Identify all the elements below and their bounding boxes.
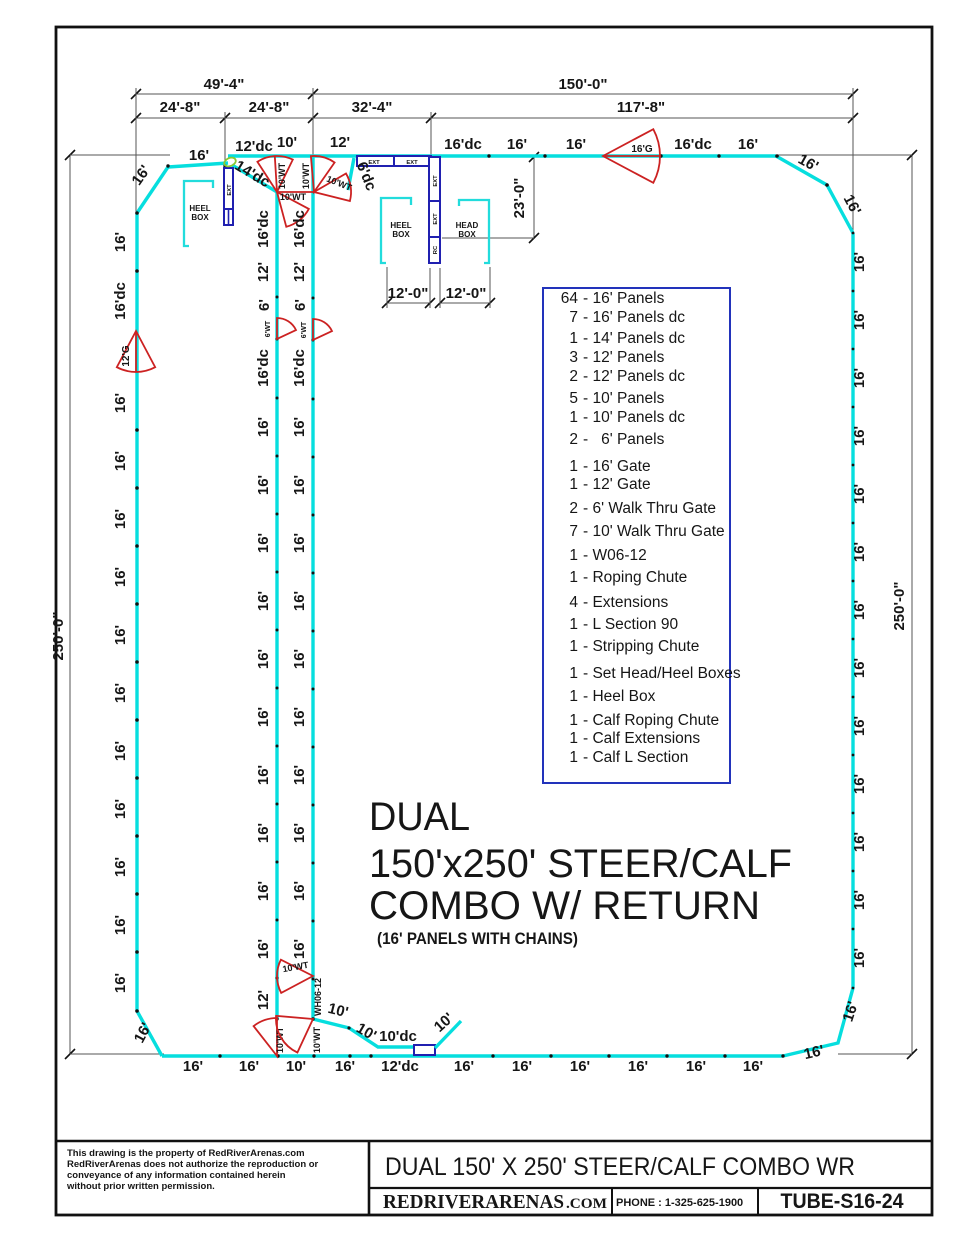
svg-text:10'WT: 10'WT	[277, 162, 287, 189]
svg-text:EXT: EXT	[433, 213, 439, 225]
svg-text:16'dc: 16'dc	[255, 349, 272, 387]
svg-text:16': 16'	[291, 591, 308, 611]
svg-text:- Roping Chute: - Roping Chute	[583, 569, 687, 586]
svg-text:- 10' Walk Thru Gate: - 10' Walk Thru Gate	[583, 523, 725, 540]
svg-text:16': 16'	[239, 1058, 259, 1075]
svg-text:250'-0": 250'-0"	[50, 611, 67, 660]
svg-text:250'-0": 250'-0"	[891, 581, 908, 630]
svg-text:16': 16'	[454, 1058, 474, 1075]
svg-text:1: 1	[569, 712, 578, 729]
svg-text:2: 2	[569, 368, 578, 385]
svg-text:16': 16'	[743, 1058, 763, 1075]
svg-text:16'G: 16'G	[631, 144, 653, 155]
svg-text:16': 16'	[255, 417, 272, 437]
svg-text:16'dc: 16'dc	[674, 136, 712, 153]
svg-text:- 12' Panels dc: - 12' Panels dc	[583, 368, 685, 385]
svg-text:EXT: EXT	[406, 160, 418, 166]
svg-text:This drawing is the property o: This drawing is the property of RedRiver…	[67, 1148, 305, 1159]
svg-text:1: 1	[569, 476, 578, 493]
svg-text:16': 16'	[570, 1058, 590, 1075]
svg-text:12': 12'	[330, 134, 350, 151]
svg-text:16'dc: 16'dc	[291, 210, 308, 248]
svg-text:- Calf Extensions: - Calf Extensions	[583, 730, 700, 747]
svg-text:10'WT: 10'WT	[312, 1026, 322, 1053]
svg-text:16': 16'	[851, 716, 868, 736]
svg-text:BOX: BOX	[458, 230, 476, 239]
svg-text:4: 4	[569, 594, 578, 611]
svg-text:RedRiverArenas does not author: RedRiverArenas does not authorize the re…	[67, 1159, 319, 1170]
svg-text:7: 7	[569, 523, 578, 540]
svg-text:16': 16'	[255, 823, 272, 843]
svg-text:16': 16'	[851, 426, 868, 446]
svg-text:16': 16'	[738, 136, 758, 153]
svg-text:16': 16'	[112, 683, 129, 703]
svg-text:REDRIVERARENAS: REDRIVERARENAS	[383, 1191, 564, 1213]
svg-text:EXT: EXT	[227, 184, 233, 196]
svg-text:6'WT: 6'WT	[301, 321, 308, 338]
svg-text:150'-0": 150'-0"	[558, 76, 607, 93]
svg-text:1: 1	[569, 616, 578, 633]
svg-text:16'dc: 16'dc	[444, 136, 482, 153]
svg-text:TUBE-S16-24: TUBE-S16-24	[781, 1190, 904, 1213]
svg-text:- Stripping Chute: - Stripping Chute	[583, 638, 699, 655]
svg-text:16': 16'	[851, 368, 868, 388]
svg-text:- W06-12: - W06-12	[583, 547, 647, 564]
svg-text:16': 16'	[255, 475, 272, 495]
svg-text:.COM: .COM	[566, 1196, 607, 1212]
svg-text:7: 7	[569, 309, 578, 326]
svg-text:16': 16'	[291, 417, 308, 437]
svg-text:1: 1	[569, 409, 578, 426]
svg-text:HEAD: HEAD	[456, 221, 479, 230]
svg-text:12'-0": 12'-0"	[388, 285, 429, 302]
svg-text:12'dc: 12'dc	[235, 138, 273, 155]
svg-text:PHONE : 1-325-625-1900: PHONE : 1-325-625-1900	[616, 1197, 743, 1209]
svg-text:1: 1	[569, 458, 578, 475]
svg-text:16': 16'	[112, 799, 129, 819]
svg-text:16': 16'	[851, 484, 868, 504]
svg-text:16': 16'	[851, 310, 868, 330]
svg-text:10'WT: 10'WT	[301, 162, 311, 189]
svg-text:16': 16'	[255, 765, 272, 785]
svg-text:- Calf L Section: - Calf L Section	[583, 749, 688, 766]
svg-text:1: 1	[569, 688, 578, 705]
svg-text:16'dc: 16'dc	[291, 349, 308, 387]
svg-text:16': 16'	[686, 1058, 706, 1075]
svg-text:32'-4": 32'-4"	[352, 99, 393, 116]
svg-text:16': 16'	[291, 881, 308, 901]
svg-text:16': 16'	[851, 948, 868, 968]
svg-text:1: 1	[569, 749, 578, 766]
svg-text:10': 10'	[286, 1058, 306, 1075]
svg-text:HEEL: HEEL	[189, 204, 210, 213]
svg-text:16'dc: 16'dc	[255, 210, 272, 248]
svg-text:1: 1	[569, 665, 578, 682]
svg-text:16': 16'	[851, 774, 868, 794]
svg-text:16': 16'	[112, 741, 129, 761]
svg-text:6'WT: 6'WT	[265, 320, 272, 337]
svg-text:49'-4": 49'-4"	[204, 76, 245, 93]
svg-text:12': 12'	[255, 990, 272, 1010]
svg-text:- 12' Gate: - 12' Gate	[583, 476, 651, 493]
svg-text:16': 16'	[112, 973, 129, 993]
svg-text:16': 16'	[291, 939, 308, 959]
svg-text:6': 6'	[256, 299, 273, 311]
svg-text:- 16' Panels: - 16' Panels	[583, 290, 665, 307]
svg-text:16': 16'	[507, 136, 527, 153]
svg-text:10': 10'	[277, 134, 297, 151]
svg-text:10'WT: 10'WT	[280, 192, 307, 202]
svg-text:117'-8": 117'-8"	[617, 99, 665, 116]
svg-text:16': 16'	[255, 533, 272, 553]
svg-text:DUAL: DUAL	[369, 795, 470, 839]
svg-text:16': 16'	[851, 890, 868, 910]
svg-text:16': 16'	[183, 1058, 203, 1075]
svg-text:23'-0": 23'-0"	[511, 178, 528, 219]
svg-text:1: 1	[569, 569, 578, 586]
svg-text:- 6' Panels: - 6' Panels	[583, 431, 665, 448]
svg-text:10'WT: 10'WT	[275, 1026, 285, 1053]
svg-text:conveyance of any information: conveyance of any information contained …	[67, 1170, 286, 1181]
svg-text:16': 16'	[112, 451, 129, 471]
svg-text:12'G: 12'G	[121, 345, 132, 367]
svg-text:- L Section 90: - L Section 90	[583, 616, 678, 633]
svg-text:EXT: EXT	[433, 175, 439, 187]
svg-text:12': 12'	[255, 262, 272, 282]
svg-text:16': 16'	[566, 136, 586, 153]
svg-text:- 12' Panels: - 12' Panels	[583, 349, 665, 366]
svg-text:16': 16'	[291, 823, 308, 843]
svg-text:16'dc: 16'dc	[112, 282, 129, 320]
svg-text:1: 1	[569, 547, 578, 564]
svg-text:64: 64	[561, 290, 579, 307]
svg-text:1: 1	[569, 730, 578, 747]
svg-text:16': 16'	[291, 475, 308, 495]
svg-text:16': 16'	[112, 567, 129, 587]
svg-text:12': 12'	[291, 262, 308, 282]
svg-text:16': 16'	[112, 625, 129, 645]
svg-text:- 16' Gate: - 16' Gate	[583, 458, 651, 475]
svg-text:16': 16'	[112, 857, 129, 877]
svg-text:(16' PANELS WITH CHAINS): (16' PANELS WITH CHAINS)	[377, 929, 578, 948]
svg-text:16': 16'	[851, 832, 868, 852]
svg-text:COMBO W/ RETURN: COMBO W/ RETURN	[369, 884, 760, 928]
svg-text:6': 6'	[292, 299, 309, 311]
svg-text:16': 16'	[112, 393, 129, 413]
svg-text:3: 3	[569, 349, 578, 366]
svg-text:16': 16'	[255, 939, 272, 959]
svg-text:without prior written permissi: without prior written permission.	[66, 1181, 215, 1192]
svg-text:WH06-12: WH06-12	[313, 978, 323, 1016]
svg-text:- 16' Panels dc: - 16' Panels dc	[583, 309, 685, 326]
svg-text:5: 5	[569, 390, 578, 407]
svg-text:16': 16'	[291, 649, 308, 669]
svg-text:16': 16'	[512, 1058, 532, 1075]
svg-text:- 14' Panels dc: - 14' Panels dc	[583, 330, 685, 347]
svg-text:BOX: BOX	[392, 230, 410, 239]
svg-text:- 6' Walk Thru Gate: - 6' Walk Thru Gate	[583, 500, 716, 517]
svg-text:RC: RC	[433, 245, 439, 254]
svg-text:- Heel Box: - Heel Box	[583, 688, 656, 705]
svg-text:- 10' Panels: - 10' Panels	[583, 390, 665, 407]
svg-text:- Calf Roping Chute: - Calf Roping Chute	[583, 712, 719, 729]
svg-text:16': 16'	[255, 707, 272, 727]
svg-text:16': 16'	[628, 1058, 648, 1075]
svg-text:- Set Head/Heel Boxes: - Set Head/Heel Boxes	[583, 665, 741, 682]
svg-text:16': 16'	[851, 658, 868, 678]
svg-text:16': 16'	[255, 881, 272, 901]
svg-text:12'dc: 12'dc	[381, 1058, 419, 1075]
svg-text:16': 16'	[112, 232, 129, 252]
svg-text:16': 16'	[255, 591, 272, 611]
svg-text:16': 16'	[851, 542, 868, 562]
svg-text:10'dc: 10'dc	[379, 1028, 417, 1045]
svg-text:1: 1	[569, 330, 578, 347]
svg-text:24'-8": 24'-8"	[160, 99, 201, 116]
svg-text:16': 16'	[291, 533, 308, 553]
svg-text:16': 16'	[189, 147, 209, 164]
svg-text:1: 1	[569, 638, 578, 655]
svg-text:2: 2	[569, 431, 578, 448]
svg-text:16': 16'	[291, 765, 308, 785]
svg-text:150'x250' STEER/CALF: 150'x250' STEER/CALF	[369, 842, 792, 886]
svg-text:BOX: BOX	[191, 213, 209, 222]
svg-text:16': 16'	[335, 1058, 355, 1075]
svg-text:DUAL 150' X 250' STEER/CALF CO: DUAL 150' X 250' STEER/CALF COMBO WR	[385, 1153, 855, 1181]
svg-text:2: 2	[569, 500, 578, 517]
svg-text:24'-8": 24'-8"	[249, 99, 290, 116]
svg-text:16': 16'	[291, 707, 308, 727]
svg-text:16': 16'	[112, 509, 129, 529]
svg-text:16': 16'	[255, 649, 272, 669]
svg-text:HEEL: HEEL	[390, 221, 411, 230]
svg-text:16': 16'	[112, 915, 129, 935]
svg-text:16': 16'	[851, 600, 868, 620]
svg-text:- 10' Panels dc: - 10' Panels dc	[583, 409, 685, 426]
svg-text:16': 16'	[851, 252, 868, 272]
svg-text:12'-0": 12'-0"	[446, 285, 487, 302]
svg-text:- Extensions: - Extensions	[583, 594, 669, 611]
